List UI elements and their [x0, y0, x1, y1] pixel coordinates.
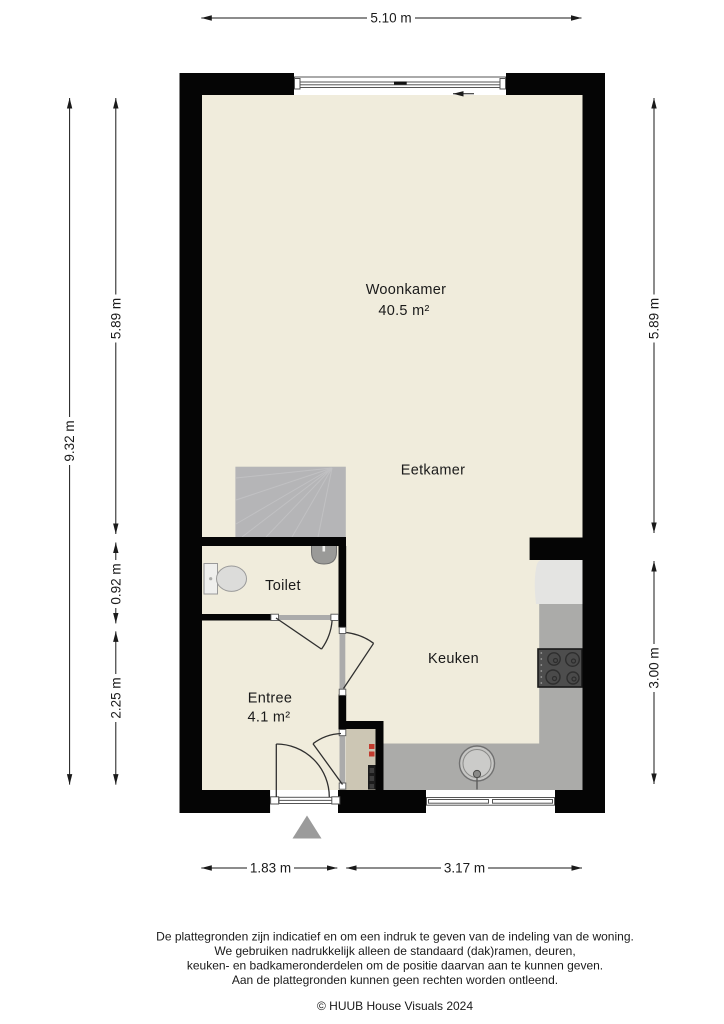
svg-text:1.83 m: 1.83 m — [250, 861, 291, 876]
svg-text:3.17 m: 3.17 m — [444, 861, 485, 876]
svg-text:40.5 m²: 40.5 m² — [378, 303, 429, 319]
svg-text:4.1 m²: 4.1 m² — [248, 710, 291, 726]
svg-text:5.89 m: 5.89 m — [647, 298, 662, 339]
svg-text:keuken- en badkameronderdelen: keuken- en badkameronderdelen om de posi… — [187, 959, 603, 973]
svg-text:Aan de plattegronden kunnen ge: Aan de plattegronden kunnen geen rechten… — [232, 973, 558, 987]
svg-text:2.25 m: 2.25 m — [108, 677, 123, 718]
svg-text:© HUUB House Visuals 2024: © HUUB House Visuals 2024 — [317, 999, 473, 1013]
svg-text:Woonkamer: Woonkamer — [366, 282, 447, 298]
svg-text:Toilet: Toilet — [265, 578, 301, 594]
svg-text:5.89 m: 5.89 m — [108, 298, 123, 339]
svg-text:We gebruiken nadrukkelijk alle: We gebruiken nadrukkelijk alleen de stan… — [214, 944, 575, 958]
svg-text:Keuken: Keuken — [428, 651, 479, 667]
svg-text:3.00 m: 3.00 m — [647, 647, 662, 688]
svg-text:0.92 m: 0.92 m — [108, 563, 123, 604]
svg-text:De plattegronden zijn indicati: De plattegronden zijn indicatief en om e… — [156, 930, 634, 944]
svg-text:Entree: Entree — [248, 691, 293, 707]
svg-text:Eetkamer: Eetkamer — [401, 463, 465, 479]
svg-text:9.32 m: 9.32 m — [62, 420, 77, 461]
svg-text:5.10 m: 5.10 m — [370, 11, 411, 26]
